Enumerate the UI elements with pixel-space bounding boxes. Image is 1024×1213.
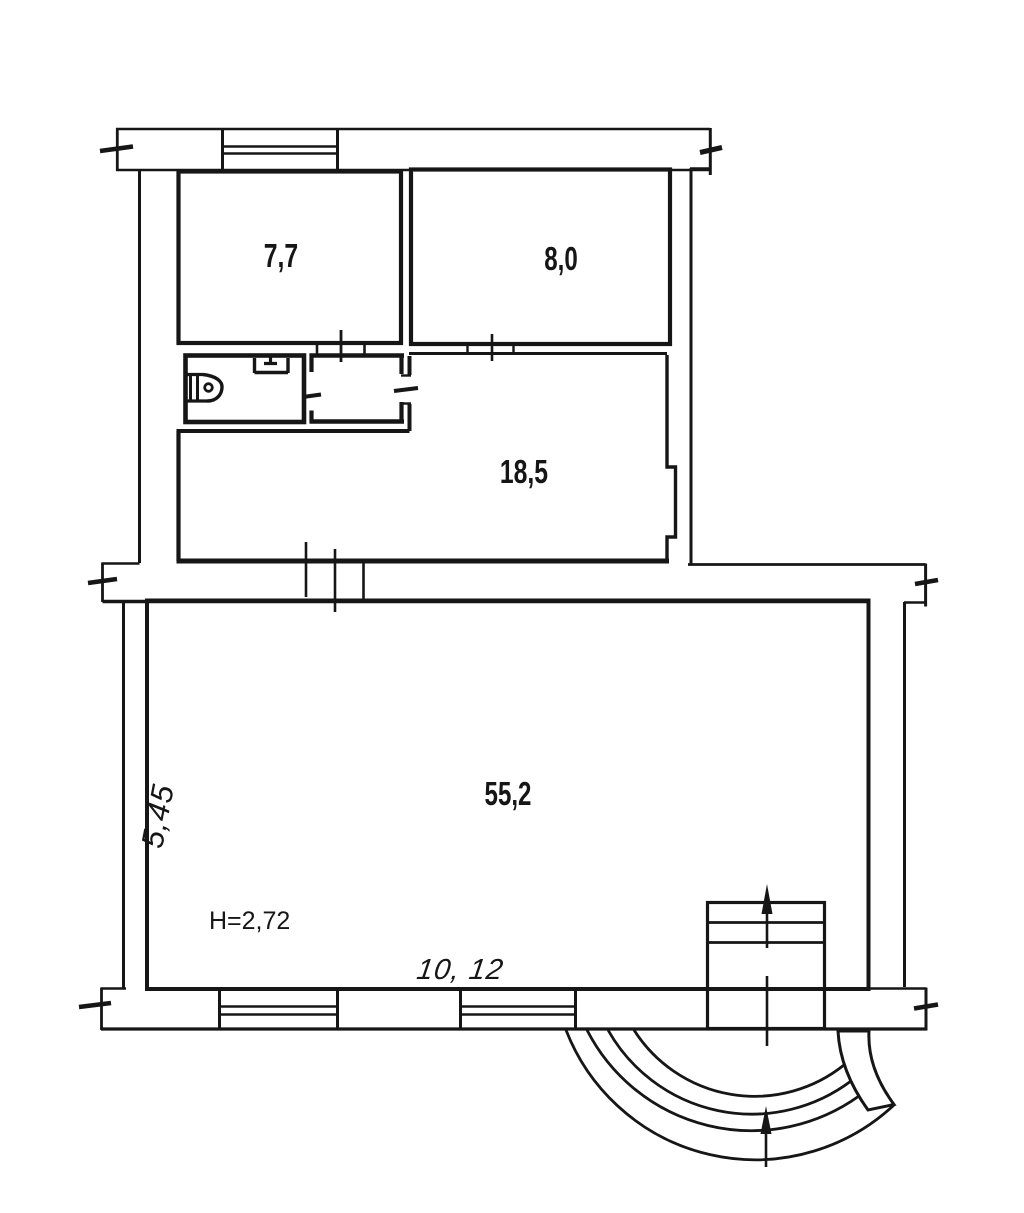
svg-text:8,0: 8,0 [544, 241, 577, 278]
svg-text:7,7: 7,7 [264, 239, 298, 275]
svg-text:18,5: 18,5 [500, 455, 548, 491]
svg-text:55,2: 55,2 [485, 776, 532, 813]
svg-text:10, 12: 10, 12 [415, 954, 506, 986]
svg-text:H=2,72: H=2,72 [209, 907, 290, 935]
